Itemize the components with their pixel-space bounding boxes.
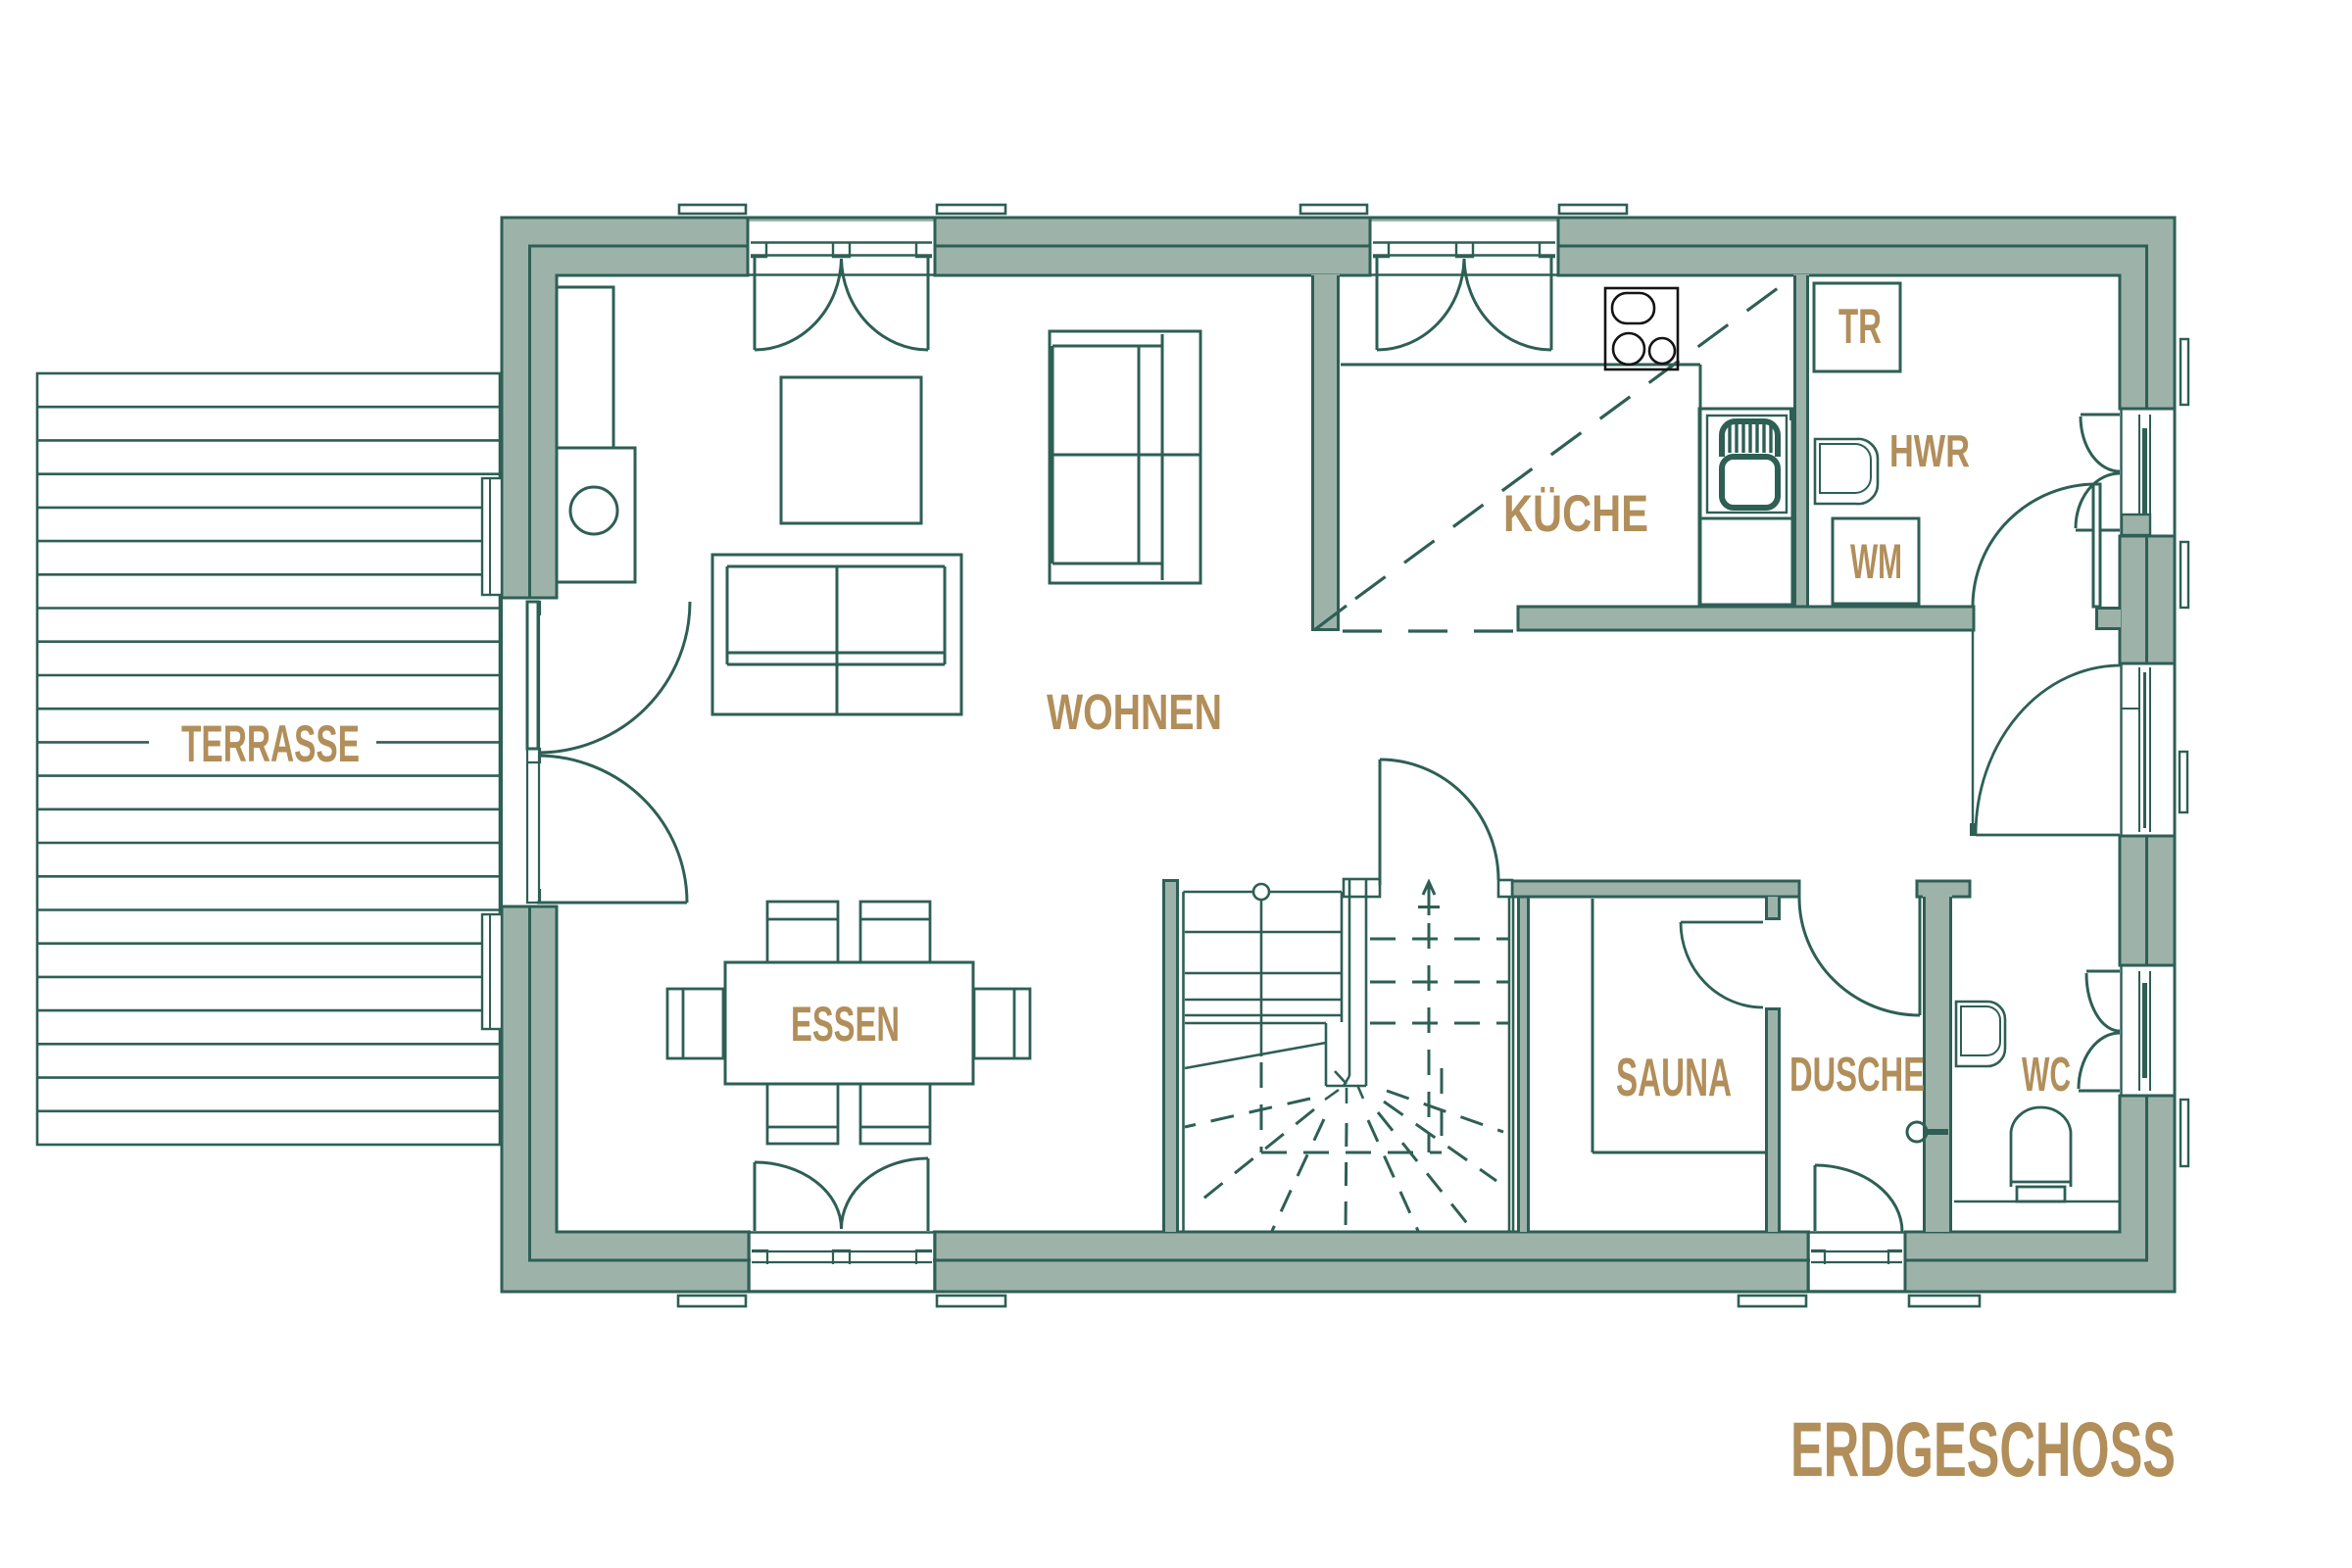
svg-text:KÜCHE: KÜCHE: [1503, 485, 1648, 543]
svg-text:ERDGESCHOSS: ERDGESCHOSS: [1790, 1405, 2176, 1493]
svg-text:SAUNA: SAUNA: [1616, 1047, 1732, 1107]
svg-text:ESSEN: ESSEN: [791, 997, 900, 1052]
svg-text:WM: WM: [1850, 534, 1902, 589]
svg-text:TR: TR: [1838, 299, 1882, 354]
svg-text:DUSCHE: DUSCHE: [1789, 1049, 1925, 1102]
svg-text:WC: WC: [2022, 1049, 2071, 1102]
svg-text:WOHNEN: WOHNEN: [1047, 684, 1222, 740]
svg-text:HWR: HWR: [1889, 425, 1970, 476]
svg-text:TERRASSE: TERRASSE: [181, 715, 360, 773]
